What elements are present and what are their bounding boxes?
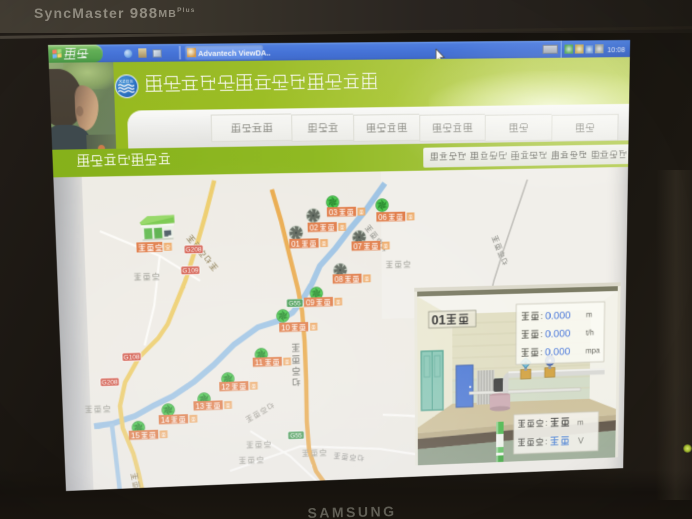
svg-text:G55: G55: [289, 300, 301, 307]
svg-text:mpa: mpa: [586, 346, 601, 356]
svg-text::: :: [540, 311, 542, 321]
svg-text:0.000: 0.000: [545, 310, 571, 322]
svg-text:V: V: [578, 435, 584, 445]
svg-text:m: m: [577, 418, 583, 427]
svg-text::: :: [540, 329, 542, 339]
svg-text:G55: G55: [290, 433, 302, 440]
svg-text:10: 10: [281, 323, 290, 333]
svg-text:11: 11: [255, 358, 264, 368]
svg-text:0.000: 0.000: [545, 328, 571, 340]
svg-text:02: 02: [310, 223, 319, 233]
svg-text:t/h: t/h: [586, 328, 595, 337]
svg-text:13: 13: [195, 401, 204, 411]
svg-text::: :: [545, 436, 547, 446]
svg-text:G208: G208: [102, 379, 118, 386]
svg-text:08: 08: [335, 274, 344, 284]
svg-text:07: 07: [353, 241, 362, 251]
svg-text:0.000: 0.000: [545, 347, 571, 359]
svg-text:12: 12: [221, 382, 230, 392]
svg-text:09: 09: [306, 298, 315, 308]
svg-text:G108: G108: [124, 354, 140, 361]
svg-text:01: 01: [431, 312, 445, 327]
svg-text:03: 03: [329, 207, 338, 217]
svg-text::: :: [540, 347, 542, 357]
svg-text:06: 06: [378, 212, 387, 222]
svg-text:15: 15: [131, 430, 140, 440]
svg-text:01: 01: [291, 239, 300, 249]
svg-text::: :: [545, 418, 547, 428]
svg-text:G109: G109: [182, 268, 198, 275]
svg-text:m: m: [586, 310, 592, 319]
svg-text:G208: G208: [186, 247, 202, 254]
svg-text:14: 14: [161, 415, 170, 425]
